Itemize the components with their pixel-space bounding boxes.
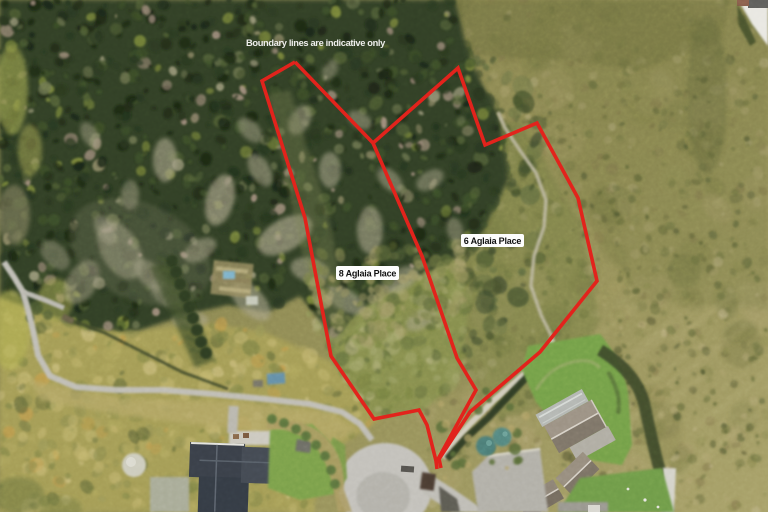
svg-text:Boundary lines are indicative: Boundary lines are indicative only — [246, 38, 386, 48]
svg-text:6 Aglaia Place: 6 Aglaia Place — [464, 236, 522, 246]
svg-text:8 Aglaia Place: 8 Aglaia Place — [339, 269, 397, 279]
